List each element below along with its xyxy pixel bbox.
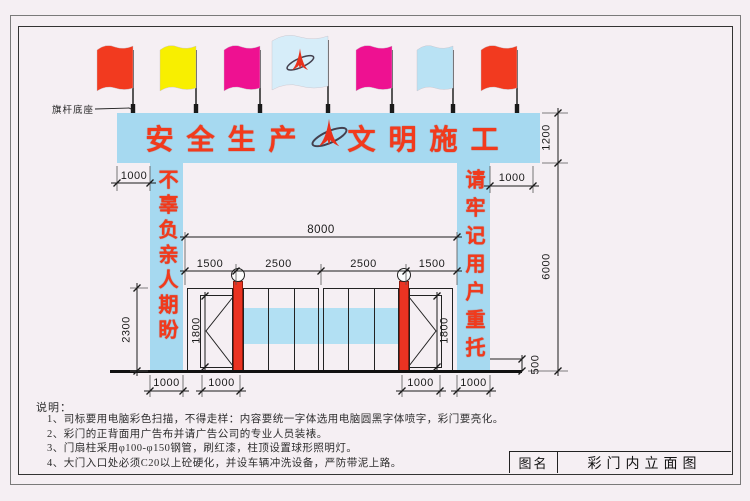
title-block: 图名 彩门内立面图 [509,451,731,473]
gate-post-left [233,281,243,372]
dim-seg1: 1500 [184,258,236,271]
panel-mullion [268,289,269,371]
gate-right-door-leaf [409,295,442,368]
dim-door-height-right: 1800 [439,311,452,351]
dim-structure-height: 6000 [541,247,554,287]
gate-left-door-leaf [200,295,233,368]
dim-opening-width: 8000 [285,224,357,237]
dim-banner-overhang-right: 1000 [491,172,533,185]
dim-door-width-right: 1000 [400,377,441,390]
panel-mullion [374,289,375,371]
dim-curb-height: 500 [530,345,543,385]
dim-col-width-right: 1000 [453,377,494,390]
gate-post-right [399,281,409,372]
right-slogan-text: 请牢记用户重托 [459,169,488,372]
note-item-1: 1、司标要用电脑彩色扫描，不得走样：内容要统一字体选用电脑圆黑字体喷字，彩门要亮… [47,413,504,428]
notes-list: 1、司标要用电脑彩色扫描，不得走样：内容要统一字体选用电脑圆黑字体喷字，彩门要亮… [47,413,504,471]
dim-gate-height: 2300 [121,310,134,350]
dim-banner-height: 1200 [541,118,554,158]
company-logo-icon [310,117,348,159]
gate-panel-right [323,288,399,372]
right-slogan-column: 请牢记用户重托 [457,163,490,372]
gate-panel-left [243,288,319,372]
banner-text-right: 文明施工 [348,118,512,158]
left-slogan-column: 不辜负亲人期盼 [150,163,183,372]
dim-banner-overhang-left: 1000 [114,170,154,183]
dim-seg2: 2500 [236,258,321,271]
dim-door-width-left: 1000 [201,377,242,390]
sheet-inner-border [18,26,733,475]
drawing-title: 彩门内立面图 [558,452,731,473]
title-block-label: 图名 [510,452,558,473]
panel-mullion [348,289,349,371]
panel-mullion [294,289,295,371]
dim-seg4: 1500 [406,258,458,271]
dim-col-width-left: 1000 [146,377,187,390]
flag-base-label: 旗杆底座 [52,102,94,116]
drawing-sheet: 安全生产 文明施工 不辜负亲人期盼 请牢记用户重托 [0,0,750,501]
left-slogan-text: 不辜负亲人期盼 [152,169,181,372]
dim-door-height-left: 1800 [191,311,204,351]
gate-banner: 安全生产 文明施工 [117,113,540,163]
note-item-3: 3、门扇柱采用φ100-φ150钢管，刷红漆，柱顶设置球形照明灯。 [47,442,504,457]
note-item-4: 4、大门入口处必须C20以上砼硬化，并设车辆冲洗设备，严防带泥上路。 [47,457,504,472]
note-item-2: 2、彩门的正背面用广告布并请广告公司的专业人员装裱。 [47,428,504,443]
dim-seg3: 2500 [321,258,406,271]
banner-text-left: 安全生产 [145,118,309,158]
